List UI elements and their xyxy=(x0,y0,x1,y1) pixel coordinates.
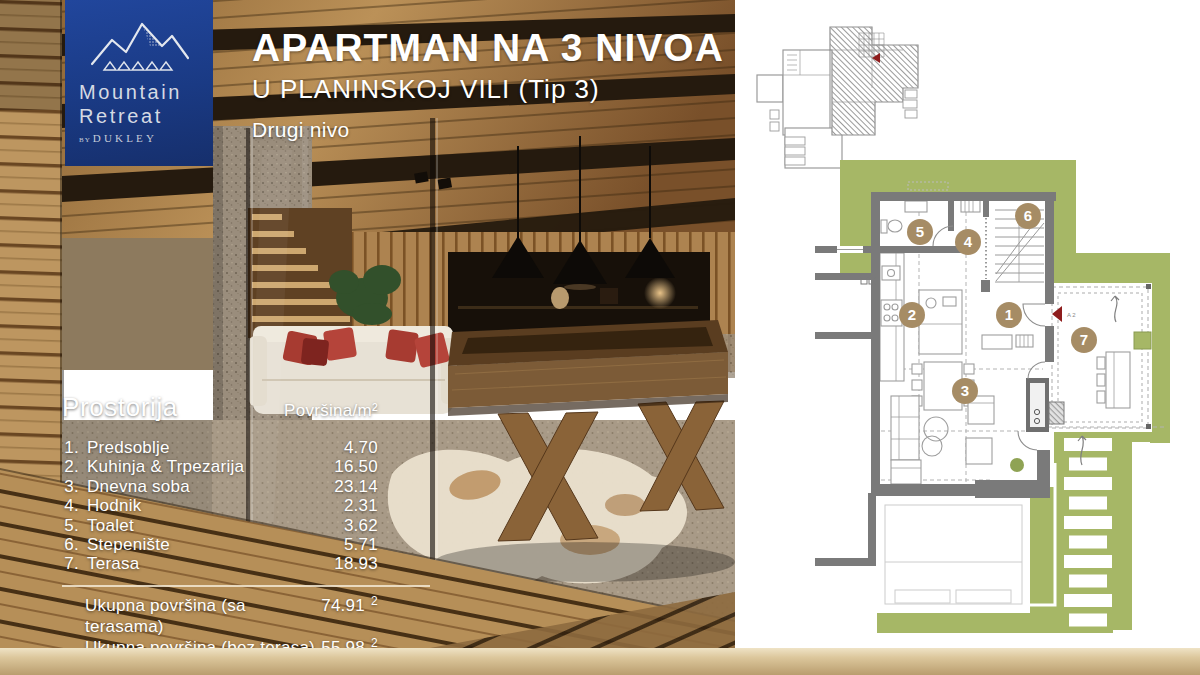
title-block: APARTMAN NA 3 NIVOA U PLANINSKOJ VILI (T… xyxy=(252,28,724,142)
mountain-logo-icon xyxy=(80,14,198,80)
table-row: 6. Stepenište 5.71 xyxy=(62,535,430,554)
entrance-marker-label: A 2 xyxy=(1067,312,1076,318)
plant-dot xyxy=(1010,458,1024,472)
room-badge-4: 4 xyxy=(964,233,973,250)
table-rows: 1. Predsoblje 4.70 2. Kuhinja & Trpezari… xyxy=(62,438,430,574)
lower-roof-terrace xyxy=(877,497,1030,613)
brand-logo: Mountain Retreat BYDUKLEY xyxy=(65,0,213,166)
room-badge-7: 7 xyxy=(1080,331,1088,348)
table-row: 1. Predsoblje 4.70 xyxy=(62,438,430,457)
room-area-table: Prostorija Površina/m² 1. Predsoblje 4.7… xyxy=(62,392,430,658)
by-brand: DUKLEY xyxy=(93,132,157,144)
room-badge-2: 2 xyxy=(908,306,916,323)
brand-byline: BYDUKLEY xyxy=(79,132,213,144)
floor-plan: A 2 1 2 3 4 5 6 7 xyxy=(815,150,1200,660)
presentation-slide: Mountain Retreat BYDUKLEY APARTMAN NA 3 … xyxy=(0,0,1200,675)
page-title: APARTMAN NA 3 NIVOA xyxy=(252,28,724,69)
table-row: 3. Dnevna soba 23.14 xyxy=(62,477,430,496)
table-divider xyxy=(62,585,430,587)
room-column-header: Prostorija xyxy=(62,392,284,423)
table-row: 5. Toalet 3.62 xyxy=(62,516,430,535)
table-row: 2. Kuhinja & Trpezarija 16.50 xyxy=(62,457,430,476)
bottom-accent-bar xyxy=(0,648,1200,675)
page-subtitle: U PLANINSKOJ VILI (Tip 3) xyxy=(252,74,724,105)
table-row: 7. Terasa 18.93 xyxy=(62,554,430,573)
table-row: 4. Hodnik 2.31 xyxy=(62,496,430,515)
room-badge-3: 3 xyxy=(961,382,969,399)
by-prefix: BY xyxy=(79,136,91,144)
level-label: Drugi nivo xyxy=(252,118,724,142)
total-row: Ukupna površina (sa terasama) 74.91 2 xyxy=(62,595,430,637)
room-badge-6: 6 xyxy=(1024,207,1032,224)
table-header: Prostorija Površina/m² xyxy=(62,392,430,423)
room-badge-5: 5 xyxy=(916,223,924,240)
area-column-header: Površina/m² xyxy=(284,401,378,421)
brand-name-line2: Retreat xyxy=(79,104,213,128)
room-badge-1: 1 xyxy=(1005,306,1013,323)
planter-box xyxy=(1134,332,1151,349)
brand-name-line1: Mountain xyxy=(79,80,213,104)
